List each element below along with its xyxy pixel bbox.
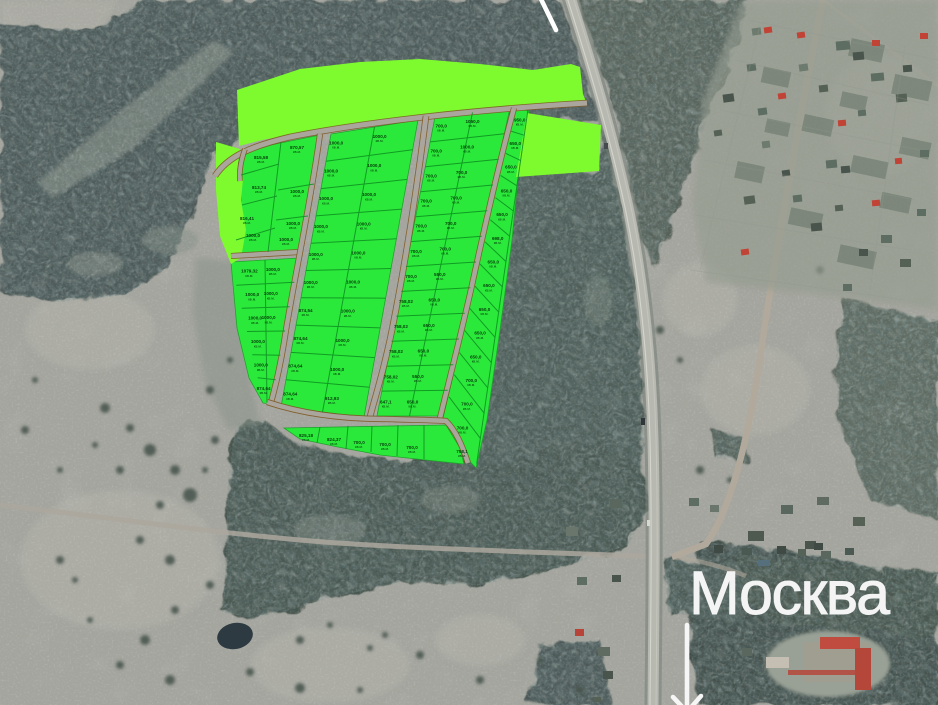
svg-text:кв.м.: кв.м. xyxy=(249,238,257,242)
svg-text:кв.м.: кв.м. xyxy=(437,129,445,133)
svg-text:кв.м.: кв.м. xyxy=(302,438,310,442)
svg-text:кв.м.: кв.м. xyxy=(417,229,425,233)
svg-text:кв.м.: кв.м. xyxy=(387,380,395,384)
svg-text:кв.м.: кв.м. xyxy=(365,197,373,201)
svg-text:кв.м.: кв.м. xyxy=(267,296,275,300)
svg-text:кв.м.: кв.м. xyxy=(458,454,466,458)
svg-text:кв.м.: кв.м. xyxy=(436,277,444,281)
svg-text:кв.м.: кв.м. xyxy=(507,170,515,174)
svg-text:кв.м.: кв.м. xyxy=(408,450,416,454)
svg-text:кв.м.: кв.м. xyxy=(381,447,389,451)
svg-text:кв.м.: кв.м. xyxy=(432,154,440,158)
svg-text:кв.м.: кв.м. xyxy=(441,252,449,256)
svg-text:кв.м.: кв.м. xyxy=(322,201,330,205)
svg-text:кв.м.: кв.м. xyxy=(243,221,251,225)
svg-text:кв.м.: кв.м. xyxy=(257,160,265,164)
svg-text:кв.м.: кв.м. xyxy=(452,201,460,205)
svg-text:кв.м.: кв.м. xyxy=(312,257,320,261)
svg-text:кв.м.: кв.м. xyxy=(425,328,433,332)
svg-text:кв.м.: кв.м. xyxy=(516,123,524,127)
svg-text:кв.м.: кв.м. xyxy=(463,407,471,411)
svg-text:кв.м.: кв.м. xyxy=(427,179,435,183)
svg-text:кв.м.: кв.м. xyxy=(503,194,511,198)
svg-text:кв.м.: кв.м. xyxy=(255,190,263,194)
svg-text:кв.м.: кв.м. xyxy=(370,168,378,172)
svg-text:кв.м.: кв.м. xyxy=(419,354,427,358)
svg-text:Москва: Москва xyxy=(689,559,890,627)
svg-text:кв.м.: кв.м. xyxy=(291,369,299,373)
svg-text:кв.м.: кв.м. xyxy=(254,344,262,348)
svg-text:кв.м.: кв.м. xyxy=(476,336,484,340)
svg-text:кв.м.: кв.м. xyxy=(498,217,506,221)
svg-text:кв.м.: кв.м. xyxy=(349,285,357,289)
svg-text:кв.м.: кв.м. xyxy=(330,442,338,446)
svg-text:кв.м.: кв.м. xyxy=(402,304,410,308)
svg-text:кв.м.: кв.м. xyxy=(282,242,290,246)
svg-text:кв.м.: кв.м. xyxy=(472,360,480,364)
svg-text:кв.м.: кв.м. xyxy=(447,226,455,230)
svg-text:кв.м.: кв.м. xyxy=(293,150,301,154)
svg-text:кв.м.: кв.м. xyxy=(494,241,502,245)
svg-text:кв.м.: кв.м. xyxy=(245,274,253,278)
svg-text:кв.м.: кв.м. xyxy=(339,343,347,347)
svg-text:кв.м.: кв.м. xyxy=(265,320,273,324)
svg-text:кв.м.: кв.м. xyxy=(333,372,341,376)
svg-text:кв.м.: кв.м. xyxy=(469,124,477,128)
svg-text:кв.м.: кв.м. xyxy=(257,368,265,372)
svg-text:кв.м.: кв.м. xyxy=(412,254,420,258)
svg-text:кв.м.: кв.м. xyxy=(332,146,340,150)
svg-text:кв.м.: кв.м. xyxy=(481,312,489,316)
svg-text:кв.м.: кв.м. xyxy=(382,405,390,409)
svg-text:кв.м.: кв.м. xyxy=(344,314,352,318)
svg-text:кв.м.: кв.м. xyxy=(407,279,415,283)
svg-text:кв.м.: кв.м. xyxy=(376,139,384,143)
svg-text:кв.м.: кв.м. xyxy=(458,175,466,179)
svg-text:кв.м.: кв.м. xyxy=(511,146,519,150)
svg-text:кв.м.: кв.м. xyxy=(485,288,493,292)
svg-text:кв.м.: кв.м. xyxy=(297,341,305,345)
svg-text:кв.м.: кв.м. xyxy=(307,285,315,289)
svg-text:кв.м.: кв.м. xyxy=(354,256,362,260)
svg-text:кв.м.: кв.м. xyxy=(289,226,297,230)
svg-text:кв.м.: кв.м. xyxy=(327,174,335,178)
svg-text:кв.м.: кв.м. xyxy=(328,401,336,405)
svg-text:кв.м.: кв.м. xyxy=(459,431,467,435)
svg-text:кв.м.: кв.м. xyxy=(248,297,256,301)
svg-text:кв.м.: кв.м. xyxy=(489,265,497,269)
svg-text:кв.м.: кв.м. xyxy=(360,227,368,231)
svg-text:кв.м.: кв.м. xyxy=(286,397,294,401)
svg-text:кв.м.: кв.м. xyxy=(463,150,471,154)
svg-text:кв.м.: кв.м. xyxy=(414,379,422,383)
svg-text:кв.м.: кв.м. xyxy=(409,405,417,409)
svg-text:кв.м.: кв.м. xyxy=(293,194,301,198)
svg-text:кв.м.: кв.м. xyxy=(302,313,310,317)
svg-text:кв.м.: кв.м. xyxy=(260,391,268,395)
svg-text:кв.м.: кв.м. xyxy=(392,354,400,358)
svg-text:кв.м.: кв.м. xyxy=(355,445,363,449)
svg-text:кв.м.: кв.м. xyxy=(430,303,438,307)
svg-text:кв.м.: кв.м. xyxy=(467,383,475,387)
svg-text:кв.м.: кв.м. xyxy=(251,321,259,325)
svg-text:кв.м.: кв.м. xyxy=(397,329,405,333)
svg-text:кв.м.: кв.м. xyxy=(269,272,277,276)
svg-text:кв.м.: кв.м. xyxy=(317,229,325,233)
svg-text:кв.м.: кв.м. xyxy=(422,204,430,208)
